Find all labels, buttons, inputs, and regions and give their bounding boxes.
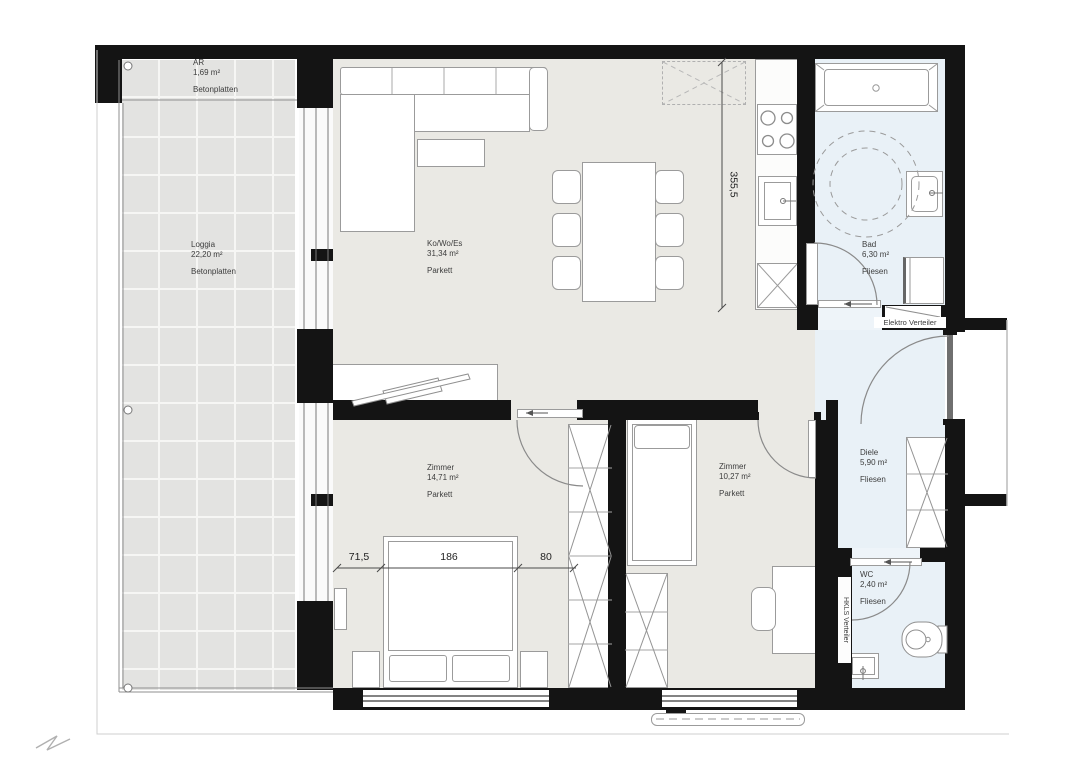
room-area: 2,40 m² bbox=[860, 580, 887, 590]
coffee-table bbox=[417, 139, 485, 167]
pillow bbox=[452, 655, 510, 682]
door-jamb bbox=[814, 412, 821, 420]
room-name: Ko/Wo/Es bbox=[427, 239, 462, 249]
wall-top bbox=[95, 45, 965, 59]
room-label-zimmer2: Zimmer 10,27 m² Parkett bbox=[719, 462, 751, 499]
kitchen-sink-basin bbox=[764, 182, 791, 220]
bath-sink-basin bbox=[911, 176, 938, 212]
bad-door-opening bbox=[818, 305, 882, 330]
room-name: AR bbox=[193, 58, 238, 68]
room-area: 1,69 m² bbox=[193, 68, 238, 78]
wall-living-zimmer1-b bbox=[577, 400, 626, 420]
wc-door-leaf bbox=[850, 558, 922, 566]
desk-chair bbox=[751, 587, 776, 631]
door-jamb bbox=[943, 329, 957, 335]
wall-living-zimmer2 bbox=[626, 400, 758, 420]
floor-plan: AR 1,69 m² Betonplatten Loggia 22,20 m² … bbox=[0, 0, 1073, 760]
sofa-chaise bbox=[340, 94, 415, 232]
room-area: 22,20 m² bbox=[191, 250, 236, 260]
room-name: Zimmer bbox=[719, 462, 751, 472]
room-area: 10,27 m² bbox=[719, 472, 751, 482]
nightstand bbox=[520, 651, 548, 688]
loggia-glazing-upper bbox=[299, 108, 333, 329]
room-floor-type: Fliesen bbox=[860, 597, 887, 607]
wall-zimmer2-jamb bbox=[826, 400, 838, 420]
glazing-mullion bbox=[311, 249, 333, 261]
pillow bbox=[634, 425, 690, 449]
room-floor-type: Betonplatten bbox=[191, 267, 236, 277]
hkls-verteiler-label: HKLS Verteiler bbox=[838, 577, 851, 663]
upper-cabinet-dashed bbox=[662, 61, 746, 105]
entry-door-leaf bbox=[947, 334, 953, 424]
window-cap bbox=[657, 690, 662, 707]
wall-exterior-stub-b bbox=[945, 494, 1007, 506]
door-jamb bbox=[752, 412, 759, 420]
dimension-80: 80 bbox=[527, 551, 565, 564]
bad-door-leaf bbox=[818, 300, 881, 308]
elektro-verteiler-label: Elektro Verteiler bbox=[874, 317, 946, 328]
room-label-loggia: Loggia 22,20 m² Betonplatten bbox=[191, 240, 236, 277]
room-floor-type: Fliesen bbox=[862, 267, 889, 277]
zimmer2-door-leaf bbox=[808, 420, 816, 478]
room-name: Loggia bbox=[191, 240, 236, 250]
stove bbox=[757, 104, 797, 155]
room-label-bad: Bad 6,30 m² Fliesen bbox=[862, 240, 889, 277]
wc-sink-basin bbox=[852, 657, 875, 675]
room-label-zimmer1: Zimmer 14,71 m² Parkett bbox=[427, 463, 459, 500]
wall-zimmer1-zimmer2 bbox=[608, 420, 626, 688]
room-area: 31,34 m² bbox=[427, 249, 462, 259]
door-jamb bbox=[943, 419, 957, 425]
hall-wardrobe bbox=[906, 437, 948, 548]
room-floor-type: Parkett bbox=[427, 266, 462, 276]
room-area: 5,90 m² bbox=[860, 458, 887, 468]
washing-machine bbox=[903, 257, 944, 304]
wall-loggia-living-pier bbox=[297, 329, 333, 403]
dining-chair bbox=[552, 170, 581, 204]
sideboard bbox=[332, 364, 498, 404]
dimension-186: 186 bbox=[430, 551, 468, 564]
dining-chair bbox=[655, 256, 684, 290]
room-floor-type: Betonplatten bbox=[193, 85, 238, 95]
room-name: WC bbox=[860, 570, 887, 580]
bad-door-leaf-open bbox=[806, 243, 818, 305]
room-area: 14,71 m² bbox=[427, 473, 459, 483]
bathtub-basin bbox=[824, 69, 929, 106]
trim-mark bbox=[36, 736, 70, 750]
dining-chair bbox=[655, 170, 684, 204]
sofa-back bbox=[340, 67, 547, 95]
wall-loggia-living-a bbox=[297, 59, 333, 108]
room-label-diele: Diele 5,90 m² Fliesen bbox=[860, 448, 887, 485]
room-name: Zimmer bbox=[427, 463, 459, 473]
room-area: 6,30 m² bbox=[862, 250, 889, 260]
window-cap bbox=[797, 690, 802, 707]
radiator bbox=[334, 588, 347, 630]
room-label-living: Ko/Wo/Es 31,34 m² Parkett bbox=[427, 239, 462, 276]
dishwasher bbox=[757, 263, 798, 308]
wall-living-zimmer1 bbox=[333, 400, 511, 420]
wall-corner-left bbox=[95, 45, 122, 103]
window-zimmer1 bbox=[358, 690, 554, 707]
room-floor-type: Fliesen bbox=[860, 475, 887, 485]
wardrobe bbox=[625, 573, 668, 688]
dining-table bbox=[582, 162, 656, 302]
wall-zimmer2-diele bbox=[815, 420, 838, 688]
room-name: Bad bbox=[862, 240, 889, 250]
room-name: Diele bbox=[860, 448, 887, 458]
floor-loggia bbox=[122, 100, 295, 690]
window-cap bbox=[549, 690, 554, 707]
dining-chair bbox=[655, 213, 684, 247]
pillow bbox=[389, 655, 447, 682]
wardrobe bbox=[568, 424, 612, 688]
wall-right-top bbox=[945, 45, 965, 332]
window-zimmer2 bbox=[657, 690, 802, 707]
window-sill bbox=[651, 713, 805, 726]
zimmer1-sliding-door bbox=[517, 409, 583, 418]
dining-chair bbox=[552, 213, 581, 247]
glazing-mullion bbox=[311, 494, 333, 506]
nightstand bbox=[352, 651, 380, 688]
dimension-71-5: 71,5 bbox=[340, 551, 378, 564]
room-label-ar: AR 1,69 m² Betonplatten bbox=[193, 58, 238, 95]
wall-loggia-living-b bbox=[297, 601, 333, 690]
room-floor-type: Parkett bbox=[427, 490, 459, 500]
room-floor-type: Parkett bbox=[719, 489, 751, 499]
dining-chair bbox=[552, 256, 581, 290]
room-label-wc: WC 2,40 m² Fliesen bbox=[860, 570, 887, 607]
dimension-355-5: 355,5 bbox=[727, 163, 740, 207]
wall-wc-top-b bbox=[920, 548, 950, 562]
wall-right-bottom bbox=[945, 508, 965, 710]
window-cap bbox=[358, 690, 363, 707]
sofa-armrest bbox=[529, 67, 548, 131]
